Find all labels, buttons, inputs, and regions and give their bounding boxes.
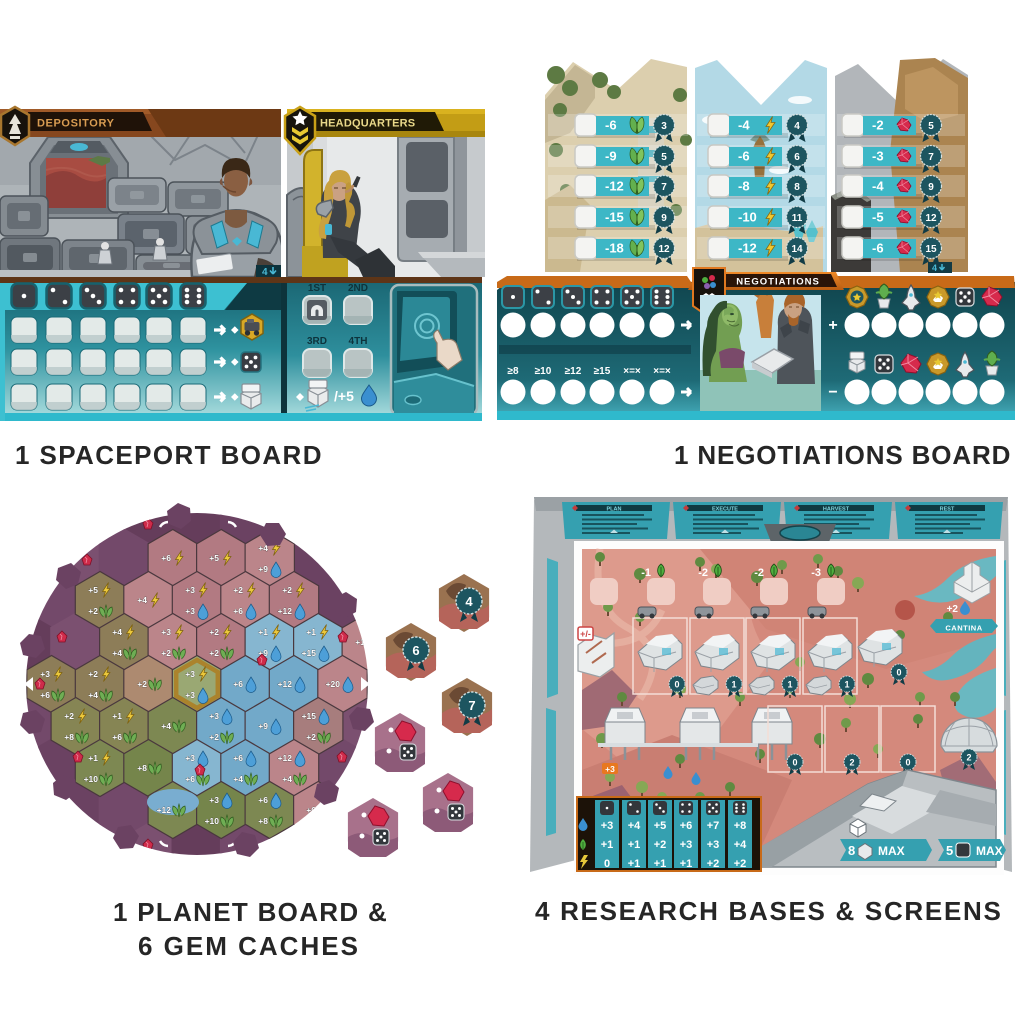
svg-text:5: 5 xyxy=(928,121,934,132)
svg-text:+6: +6 xyxy=(161,553,171,563)
svg-text:0: 0 xyxy=(604,858,610,870)
svg-text:+12: +12 xyxy=(278,606,293,616)
svg-text:4: 4 xyxy=(262,267,268,278)
svg-text:+2: +2 xyxy=(137,679,147,689)
svg-text:+4: +4 xyxy=(137,595,147,605)
svg-text:+1: +1 xyxy=(88,753,98,763)
svg-text:+8: +8 xyxy=(734,820,747,832)
svg-text:-18: -18 xyxy=(605,241,624,256)
svg-text:+5: +5 xyxy=(88,585,98,595)
svg-text:+4: +4 xyxy=(628,820,641,832)
svg-text:-4: -4 xyxy=(738,118,750,133)
svg-text:-4: -4 xyxy=(872,179,884,194)
svg-text:+3: +3 xyxy=(605,764,615,774)
svg-text:+4: +4 xyxy=(112,627,122,637)
svg-text:+3: +3 xyxy=(161,627,171,637)
svg-text:CANTINA: CANTINA xyxy=(945,624,982,633)
svg-text:MAX: MAX xyxy=(976,844,1003,858)
svg-text:HARVEST: HARVEST xyxy=(823,507,850,513)
svg-text:+2: +2 xyxy=(282,585,292,595)
svg-text:+2: +2 xyxy=(209,732,219,742)
svg-text:+6: +6 xyxy=(40,690,50,700)
svg-text:+6: +6 xyxy=(185,774,195,784)
svg-text:+4: +4 xyxy=(88,690,98,700)
svg-text:0: 0 xyxy=(896,668,901,678)
svg-text:+2: +2 xyxy=(734,858,747,870)
svg-text:+1: +1 xyxy=(680,858,693,870)
svg-text:+6: +6 xyxy=(306,805,316,815)
svg-text:4: 4 xyxy=(794,121,800,132)
svg-text:+8: +8 xyxy=(258,816,268,826)
svg-text:+15: +15 xyxy=(302,711,317,721)
svg-text:1: 1 xyxy=(787,680,792,690)
svg-text:12: 12 xyxy=(658,244,670,255)
svg-text:-6: -6 xyxy=(738,149,750,164)
svg-text:DEPOSITORY: DEPOSITORY xyxy=(37,118,115,130)
svg-text:+: + xyxy=(828,317,837,334)
svg-text:+5: +5 xyxy=(654,820,667,832)
svg-text:+3: +3 xyxy=(707,839,720,851)
svg-text:14: 14 xyxy=(791,244,803,255)
svg-text:+2: +2 xyxy=(209,627,219,637)
svg-text:MAX: MAX xyxy=(878,844,905,858)
svg-text:/+5: /+5 xyxy=(334,388,354,404)
svg-text:REST: REST xyxy=(940,507,955,513)
svg-text:-2: -2 xyxy=(872,118,884,133)
svg-text:+2: +2 xyxy=(64,711,74,721)
svg-text:+1: +1 xyxy=(628,858,641,870)
svg-text:15: 15 xyxy=(925,244,937,255)
svg-text:+6: +6 xyxy=(233,753,243,763)
svg-text:2: 2 xyxy=(966,753,971,763)
svg-text:≥15: ≥15 xyxy=(594,366,611,377)
svg-text:0: 0 xyxy=(792,758,797,768)
svg-text:+12: +12 xyxy=(278,679,293,689)
svg-text:+4: +4 xyxy=(282,774,292,784)
svg-text:9: 9 xyxy=(928,182,934,193)
svg-text:+15: +15 xyxy=(302,648,317,658)
svg-text:-10: -10 xyxy=(738,210,757,225)
svg-text:+8: +8 xyxy=(64,732,74,742)
svg-text:≥8: ≥8 xyxy=(507,366,518,377)
svg-text:+3: +3 xyxy=(185,585,195,595)
svg-text:×=×: ×=× xyxy=(623,366,641,377)
svg-text:+3: +3 xyxy=(601,820,614,832)
svg-text:5: 5 xyxy=(946,843,953,858)
svg-text:-12: -12 xyxy=(605,179,624,194)
svg-text:-9: -9 xyxy=(605,149,617,164)
svg-text:+1: +1 xyxy=(112,711,122,721)
svg-text:2ND: 2ND xyxy=(348,283,368,294)
svg-text:0: 0 xyxy=(674,680,679,690)
svg-text:+2: +2 xyxy=(161,648,171,658)
svg-text:+10: +10 xyxy=(205,816,220,826)
svg-text:8: 8 xyxy=(794,182,800,193)
svg-text:+1: +1 xyxy=(628,839,641,851)
svg-text:9: 9 xyxy=(661,213,667,224)
svg-text:+1: +1 xyxy=(654,858,667,870)
svg-text:+3: +3 xyxy=(185,690,195,700)
svg-text:≥10: ≥10 xyxy=(535,366,552,377)
svg-text:-3: -3 xyxy=(811,567,821,579)
svg-text:+2: +2 xyxy=(947,604,959,615)
svg-text:6: 6 xyxy=(794,152,800,163)
svg-text:+1: +1 xyxy=(258,627,268,637)
svg-text:×=×: ×=× xyxy=(653,366,671,377)
svg-text:NEGOTIATIONS: NEGOTIATIONS xyxy=(736,277,820,288)
svg-text:4TH: 4TH xyxy=(349,336,368,347)
svg-text:+2: +2 xyxy=(654,839,667,851)
svg-text:+6: +6 xyxy=(258,795,268,805)
svg-text:2: 2 xyxy=(849,758,854,768)
svg-text:+2: +2 xyxy=(88,669,98,679)
svg-text:1ST: 1ST xyxy=(308,283,326,294)
svg-text:−: − xyxy=(828,384,837,401)
svg-text:+6: +6 xyxy=(680,820,693,832)
svg-text:-15: -15 xyxy=(605,210,624,225)
svg-text:+4: +4 xyxy=(734,839,747,851)
svg-text:-2: -2 xyxy=(698,567,708,579)
svg-text:7: 7 xyxy=(468,698,475,713)
svg-text:+2: +2 xyxy=(88,606,98,616)
svg-text:+1: +1 xyxy=(601,839,614,851)
svg-text:+4: +4 xyxy=(112,648,122,658)
svg-text:4: 4 xyxy=(465,594,473,609)
svg-text:+3: +3 xyxy=(680,839,693,851)
svg-text:+20: +20 xyxy=(326,679,341,689)
svg-text:+1: +1 xyxy=(306,627,316,637)
svg-text:+/-: +/- xyxy=(580,629,591,639)
svg-text:+2: +2 xyxy=(306,732,316,742)
svg-text:+6: +6 xyxy=(233,606,243,616)
svg-text:+2: +2 xyxy=(707,858,720,870)
svg-text:+9: +9 xyxy=(258,721,268,731)
svg-text:+10: +10 xyxy=(84,774,99,784)
svg-text:+12: +12 xyxy=(157,805,172,815)
svg-text:≥12: ≥12 xyxy=(565,366,582,377)
svg-text:+4: +4 xyxy=(161,721,171,731)
svg-text:-5: -5 xyxy=(872,210,884,225)
svg-text:+3: +3 xyxy=(185,669,195,679)
svg-text:12: 12 xyxy=(925,213,937,224)
svg-text:4: 4 xyxy=(932,263,937,273)
svg-text:+7: +7 xyxy=(707,820,720,832)
svg-text:3RD: 3RD xyxy=(307,336,327,347)
svg-text:1: 1 xyxy=(731,680,736,690)
svg-text:+6: +6 xyxy=(233,679,243,689)
svg-text:-6: -6 xyxy=(872,241,884,256)
svg-text:5: 5 xyxy=(661,152,667,163)
svg-text:+4: +4 xyxy=(233,774,243,784)
svg-text:EXECUTE: EXECUTE xyxy=(712,507,738,513)
svg-text:+3: +3 xyxy=(185,606,195,616)
svg-text:11: 11 xyxy=(792,213,803,224)
svg-text:8: 8 xyxy=(848,843,855,858)
svg-text:1: 1 xyxy=(844,680,849,690)
svg-text:+8: +8 xyxy=(137,763,147,773)
svg-text:-2: -2 xyxy=(754,567,764,579)
svg-text:+2: +2 xyxy=(233,585,243,595)
svg-text:+3: +3 xyxy=(209,711,219,721)
svg-text:+5: +5 xyxy=(209,553,219,563)
svg-text:-8: -8 xyxy=(738,179,750,194)
svg-text:-3: -3 xyxy=(872,149,884,164)
svg-text:+3: +3 xyxy=(185,753,195,763)
svg-text:+2: +2 xyxy=(209,648,219,658)
svg-text:PLAN: PLAN xyxy=(607,507,622,513)
svg-text:6: 6 xyxy=(412,643,419,658)
svg-text:+3: +3 xyxy=(209,795,219,805)
svg-text:+6: +6 xyxy=(112,732,122,742)
svg-text:+9: +9 xyxy=(258,564,268,574)
svg-text:+12: +12 xyxy=(278,753,293,763)
svg-text:-12: -12 xyxy=(738,241,757,256)
svg-text:-1: -1 xyxy=(641,567,651,579)
svg-text:7: 7 xyxy=(661,182,667,193)
svg-text:7: 7 xyxy=(928,152,934,163)
svg-text:-6: -6 xyxy=(605,118,617,133)
svg-text:3: 3 xyxy=(661,121,667,132)
svg-text:0: 0 xyxy=(905,758,910,768)
svg-text:+3: +3 xyxy=(40,669,50,679)
svg-text:HEADQUARTERS: HEADQUARTERS xyxy=(320,118,415,130)
